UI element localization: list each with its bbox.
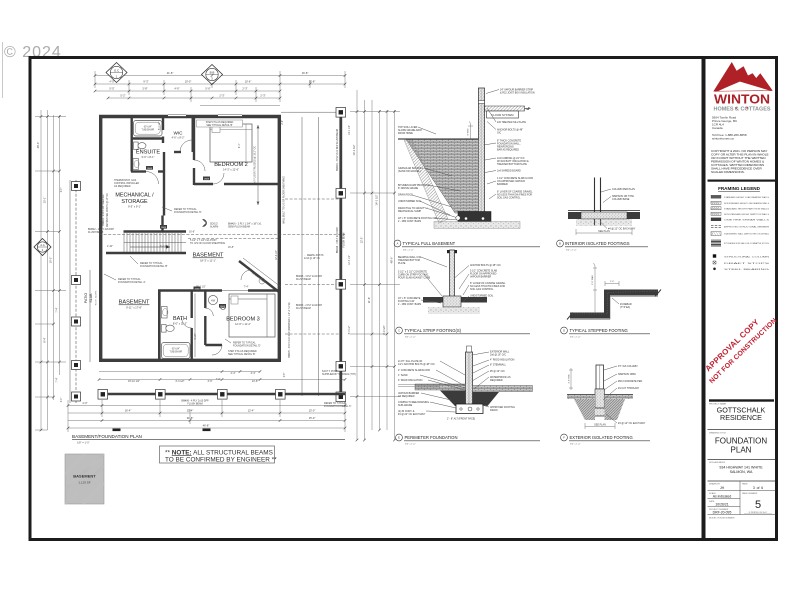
svg-text:TO U/S OF FLOOR SHEATHING: TO U/S OF FLOOR SHEATHING: [190, 242, 225, 245]
svg-text:1,129 SF: 1,129 SF: [78, 481, 90, 485]
svg-text:3/4" = 1'-0": 3/4" = 1'-0": [405, 336, 416, 338]
svg-text:WINTON: WINTON: [714, 92, 770, 107]
svg-text:8'-3 1/2": 8'-3 1/2": [382, 325, 386, 335]
svg-text:SOIL GAS CONTROL: SOIL GAS CONTROL: [497, 197, 521, 200]
svg-text:FLOOR SYSTEM: FLOOR SYSTEM: [492, 113, 515, 117]
svg-text:5: 5: [755, 499, 761, 511]
svg-text:9'-11" x 17'-8": 9'-11" x 17'-8": [126, 306, 142, 310]
svg-text:2x10 @ 16" OC: 2x10 @ 16" OC: [304, 258, 320, 260]
svg-text:BARRIER: BARRIER: [497, 183, 508, 186]
svg-text:4'-4": 4'-4": [231, 372, 236, 375]
svg-text:1" SAND: 1" SAND: [398, 374, 408, 377]
svg-text:MECHANICAL /: MECHANICAL /: [115, 193, 154, 199]
svg-text:(SAND OR GRAVEL): (SAND OR GRAVEL): [398, 170, 421, 173]
svg-text:11'-6": 11'-6": [367, 297, 371, 303]
svg-text:HOMES & COTTAGES: HOMES & COTTAGES: [714, 106, 771, 112]
svg-text:ONE HRE SHEAR WALLS: ONE HRE SHEAR WALLS: [724, 219, 770, 222]
svg-text:48'-0": 48'-0": [36, 142, 40, 149]
svg-text:APPROVED STRUCTURAL MEMBER: APPROVED STRUCTURAL MEMBER: [724, 225, 769, 228]
svg-text:2' - 8" ALT (FRONT FACE): 2' - 8" ALT (FRONT FACE): [447, 418, 475, 421]
svg-text:VAPOUR BARRIER: VAPOUR BARRIER: [470, 276, 491, 279]
svg-text:8" ABOVE GRADE: 8" ABOVE GRADE: [398, 187, 419, 190]
svg-text:#4 @ 12" OC EACH WAY: #4 @ 12" OC EACH WAY: [618, 422, 646, 425]
svg-text:BATH: BATH: [173, 316, 187, 322]
svg-text:4'-0": 4'-0": [82, 401, 87, 405]
svg-text:12'-4 1/2": 12'-4 1/2": [276, 250, 278, 260]
svg-text:Canada: Canada: [712, 126, 723, 130]
svg-text:SEE TYPICAL DETAIL 'B': SEE TYPICAL DETAIL 'B': [206, 124, 233, 127]
svg-text:TUB/SHWR: TUB/SHWR: [169, 351, 182, 354]
svg-text:3/4" = 1'-0": 3/4" = 1'-0": [566, 249, 577, 251]
svg-text:TYPICAL STRIP FOOTING(S): TYPICAL STRIP FOOTING(S): [405, 328, 462, 333]
svg-text:SLAB: SLAB: [89, 293, 93, 303]
svg-text:4x? FLOOR TRUSSES @ 19.2" OC: 4x? FLOOR TRUSSES @ 19.2" OC: [254, 146, 257, 184]
svg-text:UNDISTURBED SOIL: UNDISTURBED SOIL: [470, 295, 494, 298]
svg-text:INTERIOR ISOLATED FOOTINGS: INTERIOR ISOLATED FOOTINGS: [565, 241, 630, 246]
svg-text:15'-4": 15'-4": [187, 408, 194, 412]
svg-text:DATE: DATE: [709, 500, 715, 503]
svg-text:POUR SLAB AGAINST CURB: POUR SLAB AGAINST CURB: [398, 277, 431, 280]
svg-text:COLUMN PER PLAN: COLUMN PER PLAN: [612, 188, 635, 191]
svg-text:FOUNDATION DETAIL 'B': FOUNDATION DETAIL 'B': [140, 265, 168, 268]
svg-text:AS REQUIRED: AS REQUIRED: [398, 395, 415, 398]
svg-text:1'-0": 1'-0": [610, 281, 615, 283]
svg-text:2'-0": 2'-0": [61, 188, 63, 193]
svg-text:W/ 2% SLOPE: W/ 2% SLOPE: [96, 290, 98, 305]
svg-text:EXTERIOR ISOLATED FOOTING: EXTERIOR ISOLATED FOOTING: [570, 435, 633, 440]
svg-text:NON-STANDARD HEIGHT PARTITION: NON-STANDARD HEIGHT PARTITION WALLS: [724, 213, 770, 216]
svg-text:8" STEMWALL: 8" STEMWALL: [490, 364, 507, 367]
svg-text:2x4 SHREDD BOARD: 2x4 SHREDD BOARD: [497, 170, 521, 173]
svg-text:2x6 @ 16" O/C: 2x6 @ 16" O/C: [490, 354, 506, 357]
svg-text:3 1/2": 3 1/2": [194, 333, 197, 339]
svg-text:STEP FTG AS REQUIRED: STEP FTG AS REQUIRED: [206, 121, 234, 124]
svg-text:SOIL GAS CONTROL: SOIL GAS CONTROL: [470, 288, 494, 291]
svg-text:7'-4": 7'-4": [55, 377, 59, 382]
svg-text:O/C: O/C: [497, 132, 502, 135]
svg-text:AS REQUIRED: AS REQUIRED: [114, 185, 131, 188]
svg-text:BAR AS REQUIRED: BAR AS REQUIRED: [497, 149, 519, 152]
svg-text:HW: HW: [211, 299, 216, 303]
svg-text:2'-3": 2'-3": [260, 93, 265, 97]
svg-text:2'-3": 2'-3": [242, 86, 247, 90]
svg-text:10'-6": 10'-6": [245, 79, 252, 83]
svg-text:SCALED DIMENSIONS.: SCALED DIMENSIONS.: [711, 170, 745, 174]
svg-text:2'-0" MAX: 2'-0" MAX: [591, 275, 594, 285]
svg-text:TYPICAL STEPPED FOOTING: TYPICAL STEPPED FOOTING: [570, 328, 628, 333]
svg-text:COLUMN BASE: COLUMN BASE: [612, 198, 630, 201]
svg-text:ENSUITE: ENSUITE: [136, 150, 161, 156]
svg-text:PAGE NUMBER: PAGE NUMBER: [742, 492, 758, 495]
svg-text:8" MIN: 8" MIN: [468, 128, 470, 135]
svg-text:4" RIGID INSULATION: 4" RIGID INSULATION: [398, 379, 423, 382]
svg-text:FOUNDATION DETAIL 'A': FOUNDATION DETAIL 'A': [118, 281, 146, 284]
svg-text:C: C: [398, 329, 400, 333]
svg-text:2'-10": 2'-10": [107, 246, 113, 248]
svg-text:3'-3 1/2": 3'-3 1/2": [175, 380, 184, 383]
svg-text:2668: 2668: [147, 168, 153, 170]
svg-text:3'-4": 3'-4": [251, 372, 256, 375]
svg-text:#4 CUT THROUGH: #4 CUT THROUGH: [618, 387, 639, 390]
svg-text:8'-0" x 11'-2": 8'-0" x 11'-2": [173, 322, 187, 326]
svg-text:5'-5": 5'-5": [109, 86, 114, 90]
svg-text:SUB-GRADE: SUB-GRADE: [398, 404, 413, 407]
svg-text:BASEMENT: BASEMENT: [193, 253, 224, 259]
svg-text:14'-1 1/2": 14'-1 1/2": [352, 144, 356, 155]
svg-text:PERIMETER FOUNDATION: PERIMETER FOUNDATION: [405, 435, 458, 440]
svg-text:FLUSH BEAM: FLUSH BEAM: [296, 307, 311, 310]
svg-text:FLUSH BEAM: FLUSH BEAM: [296, 278, 311, 281]
svg-text:3/4" = 1'-0": 3/4" = 1'-0": [570, 443, 581, 445]
svg-text:SITE ADDRESS: SITE ADDRESS: [709, 461, 725, 464]
svg-text:SUPPLIED BY STRINGS (TYP): SUPPLIED BY STRINGS (TYP): [322, 373, 356, 376]
svg-text:10'-2": 10'-2": [49, 257, 53, 264]
svg-text:E: E: [398, 436, 400, 440]
svg-text:FOUNDATION DETAIL 'D': FOUNDATION DETAIL 'D': [174, 211, 202, 214]
svg-text:14'-3" x 12'-6": 14'-3" x 12'-6": [223, 168, 239, 172]
svg-text:B.B: B.B: [210, 70, 215, 74]
svg-text:9'-3": 9'-3": [143, 79, 148, 83]
svg-text:BM#24 - 3 PLY 2x10 DFP: BM#24 - 3 PLY 2x10 DFP: [337, 226, 339, 253]
svg-text:#4 @ 12" OC EACH WAY: #4 @ 12" OC EACH WAY: [608, 228, 636, 231]
svg-text:15'-0": 15'-0": [309, 408, 316, 412]
svg-text:DRAIN ROCK: DRAIN ROCK: [398, 194, 413, 197]
svg-text:3/4" = 1'-0": 3/4" = 1'-0": [403, 249, 414, 251]
svg-text:16'-8": 16'-8": [309, 79, 316, 83]
svg-text:FLUSH BEAM: FLUSH BEAM: [88, 231, 103, 234]
svg-text:2668: 2668: [195, 288, 201, 290]
svg-text:STEEL BEARING: STEEL BEARING: [724, 268, 770, 271]
svg-text:SALMON, WA: SALMON, WA: [730, 470, 753, 474]
svg-text:TYPICAL FULL BASEMENT: TYPICAL FULL BASEMENT: [403, 241, 456, 246]
svg-text:48'-0": 48'-0": [390, 257, 394, 264]
svg-text:2'-0": 2'-0": [61, 398, 63, 403]
svg-text:SEMI-FLUSH BEAM: SEMI-FLUSH BEAM: [228, 226, 250, 229]
svg-text:7'-4": 7'-4": [55, 307, 59, 312]
svg-text:MECHANICAL SUMP: MECHANICAL SUMP: [398, 210, 422, 213]
svg-text:2668: 2668: [204, 178, 210, 180]
svg-text:& R22 JOIST BOX INSULATION: & R22 JOIST BOX INSULATION: [500, 92, 535, 95]
svg-text:DRAWING TITLE: DRAWING TITLE: [709, 432, 727, 435]
svg-text:10'-6": 10'-6": [252, 380, 258, 383]
svg-text:PATIO: PATIO: [84, 293, 88, 303]
svg-text:16'-4": 16'-4": [125, 408, 132, 412]
svg-text:PLATE: PLATE: [398, 262, 406, 265]
svg-text:SIMPSON CB66: SIMPSON CB66: [618, 373, 636, 376]
svg-text:16'-8": 16'-8": [302, 71, 309, 75]
svg-text:4" RIGID INSULATION: 4" RIGID INSULATION: [490, 359, 515, 362]
svg-text:STRUCTURAL COLUMN: STRUCTURAL COLUMN: [724, 255, 770, 258]
svg-text:G.C: G.C: [114, 68, 120, 72]
svg-text:14'-1 1/2": 14'-1 1/2": [349, 125, 351, 135]
svg-text:15'-1": 15'-1": [43, 197, 47, 204]
svg-text:7'-0": 7'-0": [216, 379, 221, 381]
svg-text:BM#03 - 2 PLY 2x10 DFP: BM#03 - 2 PLY 2x10 DFP: [296, 305, 323, 307]
svg-text:BEDROOM 3: BEDROOM 3: [226, 317, 260, 323]
svg-text:As indicated: As indicated: [713, 494, 732, 498]
svg-text:12'-3": 12'-3": [360, 237, 364, 244]
svg-text:DRAFT STOPS: DRAFT STOPS: [724, 262, 771, 265]
svg-text:12'-4": 12'-4": [248, 408, 255, 412]
svg-text:Ø16 CONCRETE PED: Ø16 CONCRETE PED: [618, 380, 642, 383]
svg-text:TUB/SHWR: TUB/SHWR: [141, 129, 154, 132]
svg-text:3 of 6: 3 of 6: [753, 486, 763, 490]
svg-text:12'-3 1/2": 12'-3 1/2": [349, 255, 351, 265]
svg-text:46'-8": 46'-8": [203, 423, 210, 427]
svg-text:3/4" = 1'-0": 3/4" = 1'-0": [570, 336, 581, 338]
svg-text:WALL BUILT TO U/S OF FLOOR SHE: WALL BUILT TO U/S OF FLOOR SHEATHING: [283, 176, 286, 224]
svg-text:JH: JH: [720, 486, 725, 490]
svg-text:8'-3 1/2": 8'-3 1/2": [349, 326, 351, 335]
svg-text:STORAGE: STORAGE: [121, 199, 148, 205]
svg-text:15'-0": 15'-0": [309, 416, 316, 420]
svg-text:BM#24 - 3 PLY 2x10 DFP FLUSH B: BM#24 - 3 PLY 2x10 DFP FLUSH BEAM: [336, 129, 339, 171]
svg-text:NON-STANDARD HEIGHT LOAD BEARI: NON-STANDARD HEIGHT LOAD BEARING WALLS: [724, 202, 769, 205]
svg-text:15'-10 1/2": 15'-10 1/2": [128, 380, 140, 383]
svg-text:2 - 15M CONT. BARS: 2 - 15M CONT. BARS: [398, 220, 422, 223]
svg-text:KITCHENER FOR WALL UN-COMBATIV: KITCHENER FOR WALL UN-COMBATIVE STICKS: [724, 242, 769, 245]
svg-text:12'-6" x 11'-2": 12'-6" x 11'-2": [235, 322, 251, 326]
svg-text:1/2"x ANCHOR BOLTS @ 48" O/C: 1/2"x ANCHOR BOLTS @ 48" O/C: [398, 363, 435, 366]
svg-text:FOUNDATION DETAIL 'F': FOUNDATION DETAIL 'F': [324, 405, 352, 408]
svg-text:FOUNDATION: FOUNDATION: [715, 437, 768, 446]
svg-text:31'-8": 31'-8": [187, 416, 194, 420]
svg-text:41'-8": 41'-8": [167, 71, 174, 75]
svg-text:9'-5" x 9'-1": 9'-5" x 9'-1": [128, 205, 141, 209]
svg-text:FOUNDATION DETAIL 'D': FOUNDATION DETAIL 'D': [233, 345, 261, 348]
svg-text:BM#25 - 3 PLY 2x10 DFP: BM#25 - 3 PLY 2x10 DFP: [296, 276, 323, 278]
svg-text:#5 @ 16" O/C: #5 @ 16" O/C: [490, 370, 505, 373]
svg-text:TO BE CONFIRMED BY ENGINEER **: TO BE CONFIRMED BY ENGINEER **: [165, 457, 277, 464]
svg-text:2'-4": 2'-4": [282, 120, 284, 125]
svg-text:FLUSH BEAM: FLUSH BEAM: [343, 233, 346, 248]
svg-text:8'-7 1/2": 8'-7 1/2": [159, 121, 161, 130]
svg-text:3/4" = 1'-0": 3/4" = 1'-0": [405, 443, 416, 445]
svg-text:5'-2": 5'-2": [120, 93, 125, 97]
svg-text:10'-0": 10'-0": [185, 79, 192, 83]
svg-text:#4 @ 24" OC EACH WAY: #4 @ 24" OC EACH WAY: [398, 413, 426, 416]
svg-text:STANDARD HEIGHT LOAD BEARING W: STANDARD HEIGHT LOAD BEARING WALLS: [724, 196, 770, 199]
svg-text:** NOTE: ALL STRUCTURAL BEAMS: ** NOTE: ALL STRUCTURAL BEAMS: [165, 449, 273, 456]
svg-text:PAGE: PAGE: [742, 482, 748, 485]
svg-text:D: D: [563, 329, 565, 333]
svg-text:3'-8": 3'-8": [142, 86, 147, 90]
svg-text:4'-6" x 8'-2": 4'-6" x 8'-2": [171, 136, 184, 140]
svg-text:1/8" = 1'-0": 1/8" = 1'-0": [77, 441, 90, 445]
svg-text:9'-6" x 8'-1": 9'-6" x 8'-1": [141, 155, 154, 159]
svg-text:BASEMENT: BASEMENT: [119, 300, 150, 306]
svg-text:2'-8": 2'-8": [284, 373, 286, 378]
svg-text:PLAN: PLAN: [731, 446, 752, 455]
svg-text:← DEEPE JOISTS: ← DEEPE JOISTS: [304, 255, 324, 257]
svg-text:REQUIRED: REQUIRED: [490, 379, 503, 382]
svg-text:STAGGERED WALL (SEE NOTES ON D: STAGGERED WALL (SEE NOTES ON DETAIL): [724, 233, 769, 236]
svg-text:SEE TYPICAL DETAIL 'B': SEE TYPICAL DETAIL 'B': [228, 353, 256, 356]
svg-text:DETRUSTED JOISTS @ 16" OC: DETRUSTED JOISTS @ 16" OC: [107, 193, 109, 227]
svg-text:BM#05 - 3 PLY 2x10 DFP (DROPPE: BM#05 - 3 PLY 2x10 DFP (DROPPED 1 1/2" A…: [288, 302, 291, 357]
svg-text:ALARM: ALARM: [210, 226, 218, 229]
svg-text:3'-2 1/2": 3'-2 1/2": [160, 246, 169, 248]
svg-text:18'-3" x 11'-1": 18'-3" x 11'-1": [200, 259, 216, 263]
svg-text:10/26/21: 10/26/21: [715, 502, 728, 506]
svg-text:FRAMING LEGEND: FRAMING LEGEND: [718, 186, 761, 191]
svg-text:3068: 3068: [161, 227, 167, 229]
svg-text:B: B: [559, 242, 561, 246]
svg-text:16'-8": 16'-8": [228, 247, 234, 249]
svg-text:MODEL: HOUSE NUMBER: MODEL: HOUSE NUMBER: [709, 517, 735, 519]
svg-text:3'-6": 3'-6": [208, 380, 213, 383]
svg-text:4'-6": 4'-6": [174, 86, 179, 90]
svg-text:ANCHOR BOLTS @ 48" O/C: ANCHOR BOLTS @ 48" O/C: [470, 264, 501, 267]
svg-text:A: A: [397, 242, 399, 246]
svg-text:7'-4": 7'-4": [244, 286, 249, 289]
svg-text:2x6 TREATED SILL PLATE: 2x6 TREATED SILL PLATE: [497, 121, 526, 124]
svg-text:TREATED BOTTOM PLATE: TREATED BOTTOM PLATE: [497, 163, 527, 166]
svg-text:DRAIN: DRAIN: [490, 409, 498, 412]
svg-text:BASEMENT: BASEMENT: [73, 474, 96, 479]
svg-text:FROM HOME: FROM HOME: [398, 132, 413, 135]
svg-text:BM#22 - 2 PLY 2x8 TREATED: BM#22 - 2 PLY 2x8 TREATED: [102, 194, 105, 225]
svg-text:DRF-20-095: DRF-20-095: [713, 510, 732, 514]
svg-text:(TYP EA): (TYP EA): [620, 306, 630, 309]
svg-text:4'-1": 4'-1": [239, 143, 241, 148]
svg-text:8'-4": 8'-4": [43, 337, 47, 342]
svg-text:A.A: A.A: [40, 243, 44, 247]
svg-text:3'-0" MIN: 3'-0" MIN: [569, 374, 571, 383]
svg-text:5'-6": 5'-6": [205, 86, 210, 90]
svg-text:14'-1 1/2": 14'-1 1/2": [375, 194, 379, 205]
svg-text:16'-8": 16'-8": [189, 232, 195, 234]
svg-text:4" CONCRETE SLAB/FLOOR: 4" CONCRETE SLAB/FLOOR: [398, 369, 430, 372]
svg-text:SEE PLAN: SEE PLAN: [594, 423, 606, 426]
svg-text:STANDARD HEIGHT PARTITION WALL: STANDARD HEIGHT PARTITION WALLS: [724, 208, 770, 211]
svg-text:2 - 15M CONT. BARS: 2 - 15M CONT. BARS: [398, 303, 422, 306]
svg-text:RESIDENCE: RESIDENCE: [720, 413, 762, 422]
svg-text:934 HIGHWAY 141 WHITE: 934 HIGHWAY 141 WHITE: [719, 466, 763, 470]
svg-text:WIC: WIC: [174, 131, 184, 136]
svg-text:BASEMENT/FOUNDATION PLAN: BASEMENT/FOUNDATION PLAN: [72, 434, 142, 439]
svg-text:2668: 2668: [220, 306, 226, 308]
svg-text:FLUSH BEAM: FLUSH BEAM: [187, 402, 202, 405]
svg-text:wintonhomes.ca: wintonhomes.ca: [712, 137, 734, 141]
svg-text:2'-3": 2'-3": [219, 93, 224, 97]
svg-text:BEDROOM 2: BEDROOM 2: [214, 162, 248, 168]
svg-text:UNDISTURBED SOIL: UNDISTURBED SOIL: [398, 200, 422, 203]
svg-text:P.T. 6x6 COLUMN: P.T. 6x6 COLUMN: [618, 365, 638, 368]
